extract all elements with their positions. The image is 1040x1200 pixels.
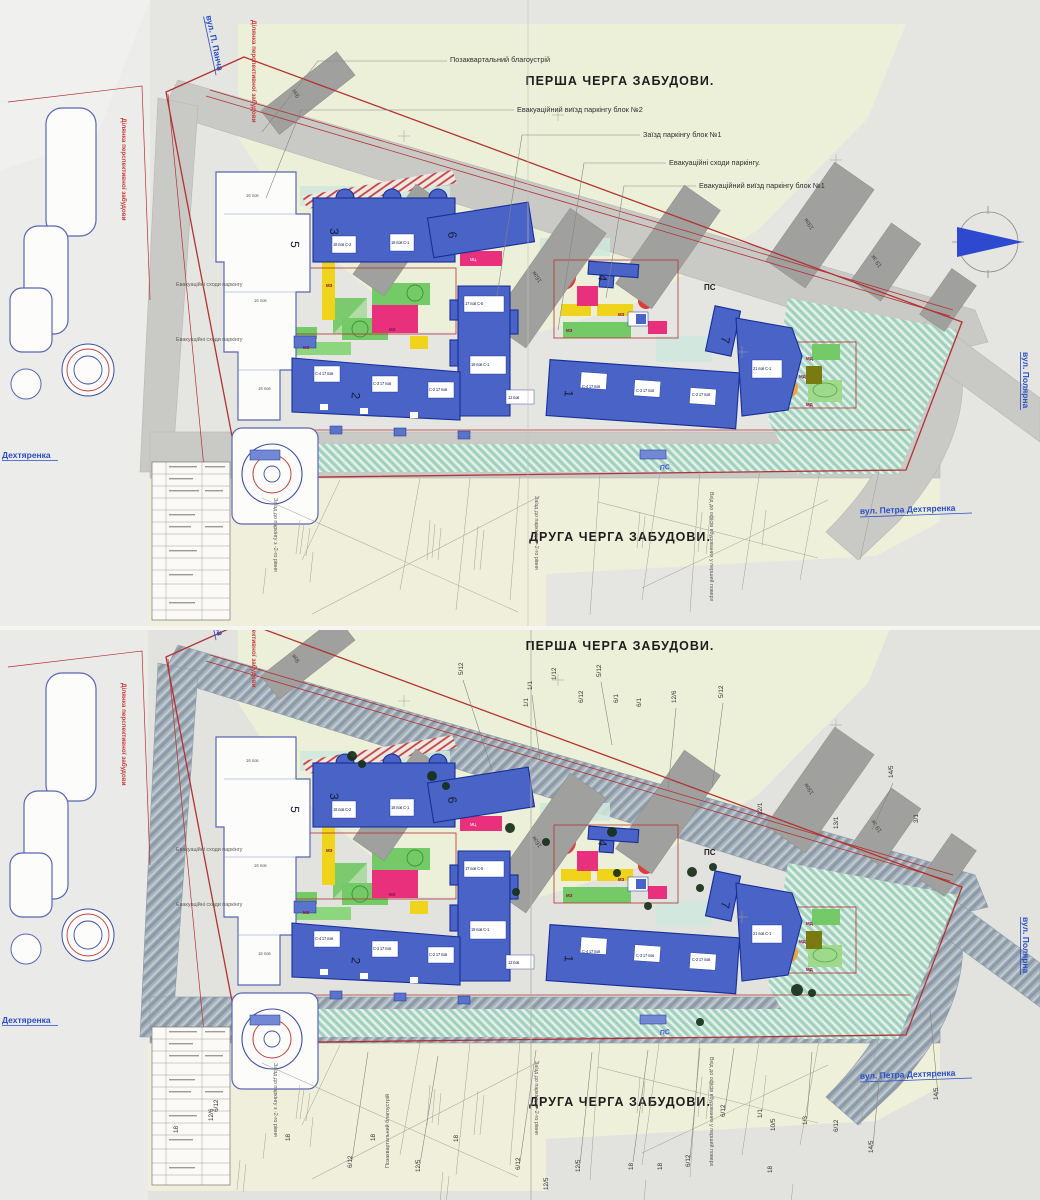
floors-fraction: 6/12 — [720, 1104, 727, 1117]
floors-fraction: 18 — [453, 1134, 460, 1142]
floors-fraction: 10/5 — [770, 1118, 777, 1131]
floors-fraction: 12/6 — [671, 690, 678, 703]
floors-fraction: 14/5 — [933, 1087, 940, 1100]
floors-fraction: 1/1 — [523, 698, 530, 707]
floors-fraction: 6/1 — [613, 694, 620, 703]
floors-fraction: 1/1 — [527, 681, 534, 690]
floors-fraction: 18 — [657, 1162, 664, 1170]
floors-fraction: 18 — [628, 1162, 635, 1170]
callout-offsite-improvement: Позаквартальний благоустрій — [450, 55, 550, 64]
floors-fraction: 18 — [767, 1165, 774, 1173]
floors-fraction: 1/12 — [551, 667, 558, 680]
floors-fraction: 5/12 — [596, 664, 603, 677]
floors-fraction: 13/1 — [833, 816, 840, 829]
floors-fraction: 14/5 — [868, 1140, 875, 1153]
floors-fraction: 6/12 — [833, 1119, 840, 1132]
floors-fraction: 1/3 — [802, 1116, 809, 1125]
floors-fraction: 12/1 — [757, 802, 764, 815]
callout-evac-exit-block2: Евакуаційний виїзд паркінгу блок №2 — [517, 105, 643, 114]
offsite-improvement-rotated-note: Позаквартальний благоустрій — [384, 1094, 391, 1168]
site-plan-photo: 9эк 16эк 16эк 19эк 19 эк — [0, 0, 1040, 1200]
callout-evac-stairs: Евакуаційні сходи паркінгу. — [669, 158, 760, 167]
first-plan-photo: Позаквартальний благоустрій Евакуаційний… — [0, 0, 1040, 626]
floors-fraction: 6/12 — [347, 1155, 354, 1168]
second-plan-photo: 5/12 1/1 1/1 1/12 5/12 6/12 6/1 6/1 12/6… — [0, 579, 1040, 1200]
floors-fraction: 5/12 — [718, 685, 725, 698]
site-plan-canvas: 9эк 16эк 16эк 19эк 19 эк — [0, 0, 1040, 1200]
floors-fraction: 6/1 — [636, 698, 643, 707]
floors-fraction: 18 — [370, 1133, 377, 1141]
floors-fraction: 6/12 — [515, 1157, 522, 1170]
floors-fraction: 12/5 — [575, 1159, 582, 1172]
floors-fraction: 3/1 — [913, 814, 920, 823]
floors-fraction: 1/1 — [757, 1109, 764, 1118]
callout-parking-entry-block1: Заїзд паркінгу блок №1 — [643, 130, 722, 139]
floors-fraction: 6/12 — [578, 690, 585, 703]
floors-fraction: 18 — [173, 1125, 180, 1133]
floors-fraction: 12/5 — [543, 1177, 550, 1190]
floors-fraction: 18 — [285, 1133, 292, 1141]
floors-fraction: 12/6 — [208, 1108, 215, 1121]
floors-fraction: 12/5 — [415, 1159, 422, 1172]
floors-fraction: 6/12 — [685, 1154, 692, 1167]
floors-fraction: 14/5 — [888, 765, 895, 778]
floors-fraction: 5/12 — [458, 662, 465, 675]
callout-evac-exit-block1: Евакуаційний виїзд паркінгу блок №1 — [699, 181, 825, 190]
